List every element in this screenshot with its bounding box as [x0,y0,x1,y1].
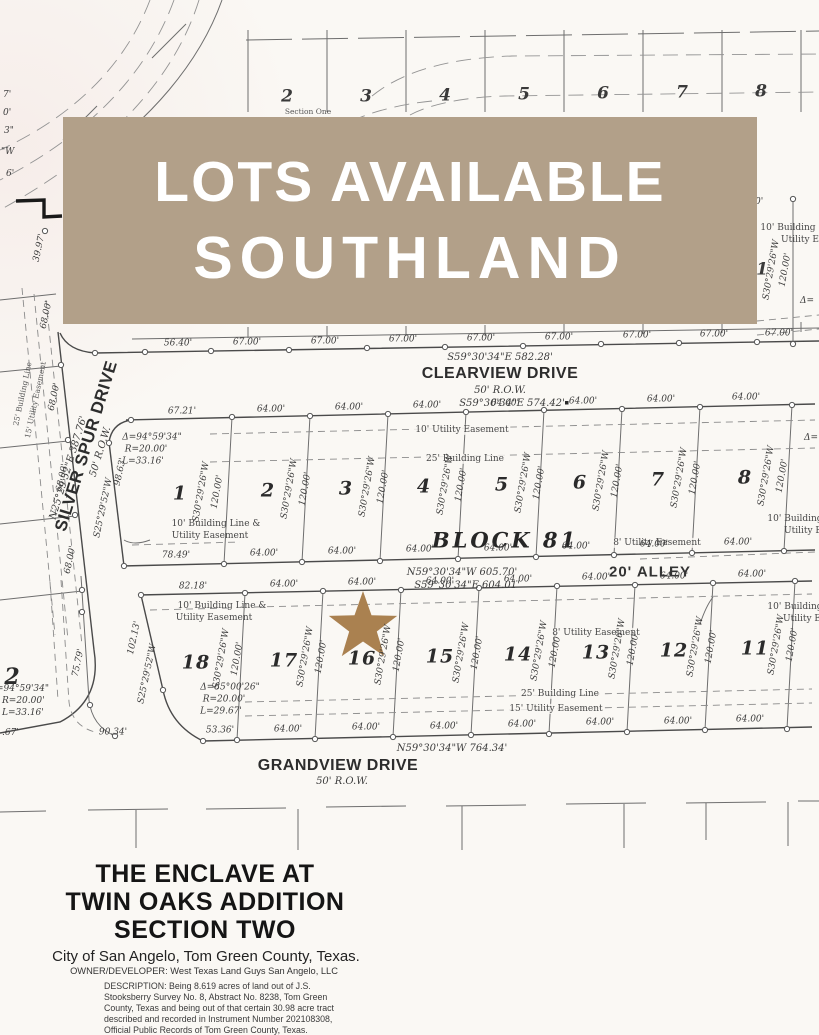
street-name-grandview: GRANDVIEW DRIVE [258,758,418,774]
lot-number: 11 [741,640,769,659]
lot-number: 6 [573,474,587,493]
curve-length: L=33.16' [2,709,44,718]
dim-fragment: 0' [3,109,11,118]
dim-label: 64.00' [406,546,434,555]
dim-label: 53.36' [206,727,234,736]
lot-number: 8 [755,84,767,101]
dim-label: 64.00' [484,545,512,554]
easement-label: 8' Utility Easement [550,628,642,638]
plat-desc-line-clipped: Official Public Records of Tom Green Cou… [104,1026,308,1035]
bearing-distance: N59°30'34"W 764.34' [397,744,507,754]
dim-label: 64.00' [335,404,363,413]
lot-number: 17 [270,652,298,671]
plat-desc-line: Stooksberry Survey No. 8, Abstract No. 8… [104,993,327,1002]
plat-title-line1: THE ENCLAVE AT [95,862,314,887]
dim-label: 64.00' [664,718,692,727]
curve-delta: Δ=85°00'26" [200,684,260,693]
street-row: 50' R.O.W. [316,777,368,787]
dim-label: 78.49' [162,552,190,561]
curve-radius: R=20.00' [2,697,45,706]
lot-number: 15 [426,648,454,667]
building-line-label: 25' Building Line [424,454,506,464]
dim-label: 64.00' [508,721,536,730]
dim-label: 64.00' [640,541,668,550]
bearing-distance: N59°30'34"W 605.70' [407,568,517,578]
clearview-south-row-line [109,404,815,442]
easement-label: 10' Building [765,602,819,612]
lot-number: 3 [360,89,372,106]
dim-label: 64.00' [738,571,766,580]
bottomleft-solid [81,576,115,736]
dim-label: 64.00' [348,579,376,588]
dim-label: 64.00' [430,723,458,732]
dim-label: 67.00' [233,339,261,348]
lot-number: 14 [504,646,532,665]
banner-line2: SOUTHLAND [193,229,626,288]
section-one-fragment: Section One [285,108,331,116]
easement-label: Utility E [782,526,819,536]
building-line-label: 25' Building Line [519,689,601,699]
dim-label: 64.00' [270,581,298,590]
blue-leader-upper [124,540,150,543]
dim-label: 67.00' [700,331,728,340]
lot-number: 7 [651,471,665,490]
plat-city-line: City of San Angelo, Tom Green County, Te… [52,949,360,964]
lot-number-fragment: 1 [756,262,768,279]
dim-label: 64.00' [586,719,614,728]
street-row: 50' R.O.W. [474,386,526,396]
plat-title-line2: TWIN OAKS ADDITION [66,890,345,915]
dim-label: 56.40' [164,340,192,349]
lot-number: 16 [348,650,376,669]
dim-label: 64.00' [660,573,688,582]
dim-label: 67.00' [623,332,651,341]
north-top-boundary [246,31,819,40]
easement-label: 10' Building Line & [170,519,263,529]
curve-length: L=29.67' [200,708,242,717]
lot-number: 18 [182,654,210,673]
grandview-south-segs [0,801,819,812]
lot-number: 4 [439,88,451,105]
dim-label: 64.00' [413,402,441,411]
lot-number: 6 [597,86,609,103]
easement-label: 10' Building [758,223,817,233]
dim-label: 64.00' [426,578,454,587]
lot-number: 13 [582,644,610,663]
dim-label: 90.34' [99,729,127,738]
dim-label: 64.00' [732,394,760,403]
curve-delta: Δ=94°59'34" [122,434,182,443]
blue-dash-upper [132,542,240,545]
plat-desc-line: DESCRIPTION: Being 8.619 acres of land o… [104,982,311,991]
plat-map-page: { "banner": { "line1": "LOTS AVAILABLE",… [0,0,819,1024]
plat-desc-line: County, Texas and being out of that cert… [104,1004,334,1013]
dim-label: 67.00' [311,338,339,347]
lot-number: 3 [339,480,353,499]
dim-label: 64.00' [504,576,532,585]
dim-label: 67.00' [389,336,417,345]
dim-label: 64.00' [491,400,519,409]
dim-label: 64.00' [569,398,597,407]
dim-label: 64.00' [562,543,590,552]
dim-label: 64.00' [274,726,302,735]
easement-label: Utility E [779,235,819,245]
dim-label: 64.00' [724,539,752,548]
dim-label: 64.00' [352,724,380,733]
plat-title-line3: SECTION TWO [114,918,296,943]
curve-fragment: Δ= [804,434,818,443]
lot-number: 2 [261,482,275,501]
lot-number: 2 [281,89,293,106]
lot-number: 5 [518,87,530,104]
easement-label: Utility Easement [170,531,251,541]
easement-label: 10' Utility Easement [413,425,510,435]
bearing-fragment: "W [1,148,14,157]
lot-number: 12 [660,642,688,661]
bl25-dash-upper [210,448,815,462]
plat-owner-line: OWNER/DEVELOPER: West Texas Land Guys Sa… [70,967,338,976]
street-name-clearview: CLEARVIEW DRIVE [422,366,579,382]
curve-radius: R=20.00' [203,696,246,705]
monument-marks [16,200,62,217]
dim-label: 67.00' [765,330,793,339]
dim-label: 67.00' [545,334,573,343]
lot-number: 5 [495,476,509,495]
curve-delta-partial: =94°59'34" [0,685,49,694]
dim-fragment: 3" [4,127,14,136]
dim-fragment: .67' [2,729,19,738]
lot-number: 4 [417,478,431,497]
dim-fragment: 7' [3,91,11,100]
dim-label: 64.00' [736,716,764,725]
dim-label: 82.18' [179,583,207,592]
banner-line1: LOTS AVAILABLE [154,154,665,211]
plat-desc-line: described and recorded in Instrument Num… [104,1015,332,1024]
dim-label: 64.00' [257,406,285,415]
easement-label: 10' Building [765,514,819,524]
easement-label: 15' Utility Easement [507,704,604,714]
lot-number: 1 [173,485,187,504]
dim-label: 67.21' [168,408,196,417]
grandview-south-ticks [136,802,788,850]
bearing-distance: S59°30'34"E 582.28' [447,353,553,363]
easement-label: Utility Easement [174,613,255,623]
dim-label: 67.00' [467,335,495,344]
dim-label: 64.00' [582,574,610,583]
lots-available-banner: LOTS AVAILABLE SOUTHLAND [63,117,757,324]
dim-label: 64.00' [647,396,675,405]
lot-number: 8 [738,469,752,488]
dim-fragment: 6' [6,170,14,179]
curve-radius: R=20.00' [125,446,168,455]
dim-label: 64.00' [250,550,278,559]
easement-label: 10' Building Line & [176,601,269,611]
curve-fragment: Δ= [800,297,814,306]
ue10-dash-upper [210,420,815,434]
lot-number: 7 [676,85,688,102]
dim-label: 64.00' [328,548,356,557]
